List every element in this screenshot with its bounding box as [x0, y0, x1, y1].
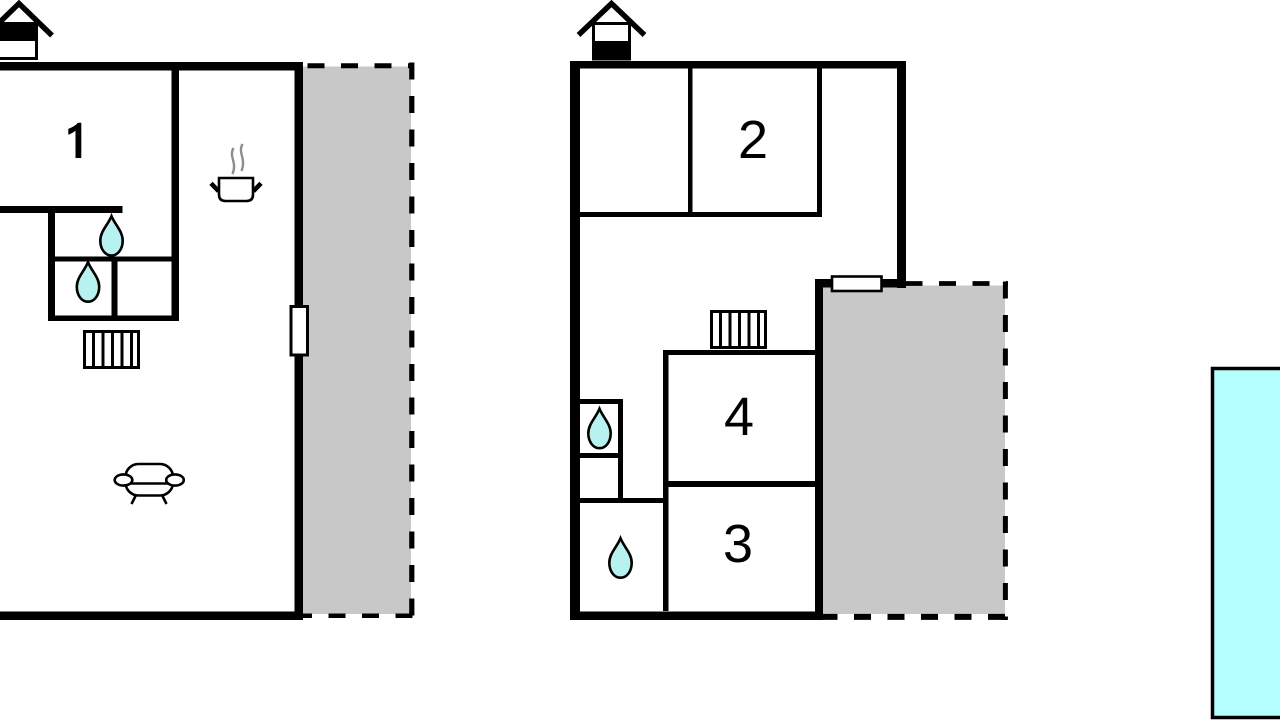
svg-text:3: 3 [723, 514, 753, 574]
svg-text:4: 4 [724, 387, 754, 447]
svg-text:2: 2 [738, 110, 768, 170]
